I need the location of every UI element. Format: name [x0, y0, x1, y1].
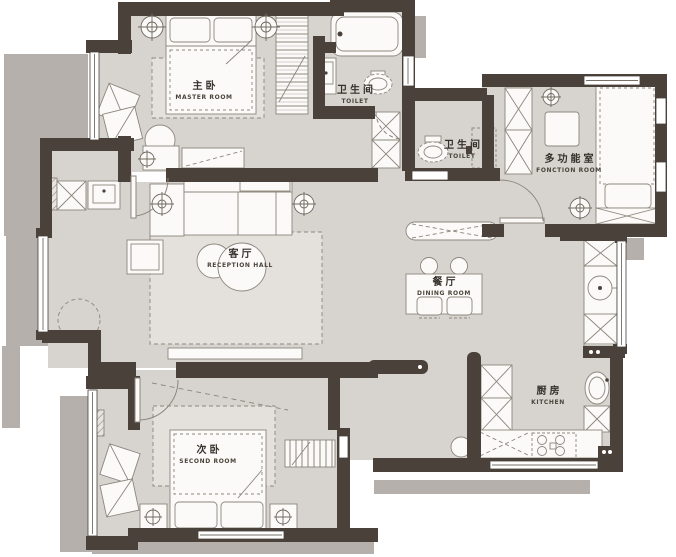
utility-column	[584, 240, 617, 346]
master-dresser	[182, 148, 244, 168]
entry-cabinet	[57, 181, 86, 210]
bookshelf	[285, 440, 335, 467]
side-table	[127, 240, 163, 274]
floor-plan: 主卧 MASTER ROOM 卫生间 TOILET 卫生间 TOILET 多功能…	[0, 0, 676, 557]
tv-bench	[168, 348, 302, 359]
master-bed	[166, 14, 256, 114]
function-cabinets	[505, 88, 532, 174]
floor-plan-drawing	[0, 0, 676, 557]
hall-cabinet	[372, 112, 400, 168]
kitchen-cabinets-left	[481, 365, 512, 431]
bathtub	[331, 12, 403, 56]
second-bed	[170, 430, 266, 530]
entry-basin	[88, 181, 120, 209]
function-bed	[596, 84, 658, 224]
master-wardrobe	[276, 14, 308, 114]
function-desk	[545, 112, 579, 146]
